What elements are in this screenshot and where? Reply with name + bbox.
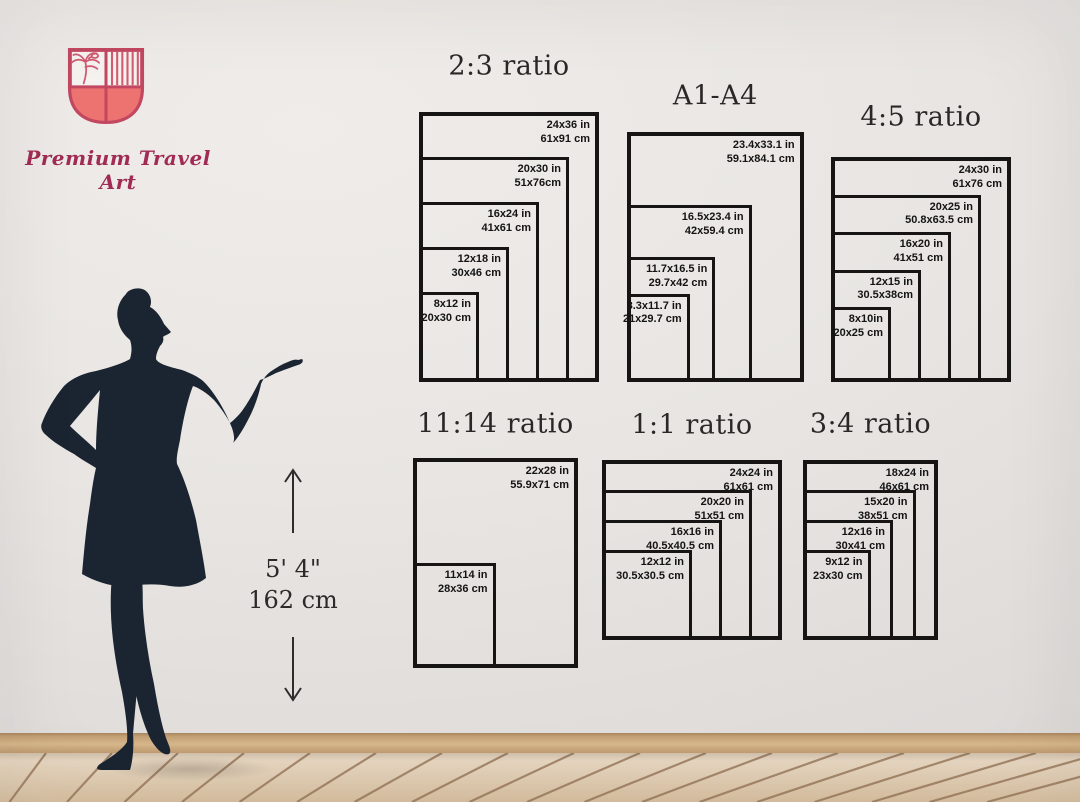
size-label: 16x16 in40.5x40.5 cm: [646, 526, 714, 553]
size-label: 15x20 in38x51 cm: [858, 496, 908, 523]
brand-name: Premium Travel Art: [18, 146, 218, 194]
height-cm-label: 162 cm: [233, 586, 353, 614]
size-label: 11x14 in28x36 cm: [438, 569, 488, 596]
brand-shield-logo: [63, 44, 149, 128]
size-box-11x14in: 11x14 in28x36 cm: [413, 563, 496, 668]
group-title: 11:14 ratio: [417, 409, 574, 440]
size-label: 23.4x33.1 in59.1x84.1 cm: [727, 139, 795, 166]
size-box-12x12in: 12x12 in30.5x30.5 cm: [602, 550, 692, 640]
size-label: 22x28 in55.9x71 cm: [510, 465, 569, 492]
height-marker: [233, 460, 353, 710]
height-feet-label: 5' 4": [233, 555, 353, 583]
size-label: 12x15 in30.5x38cm: [857, 276, 913, 303]
group-title: 1:1 ratio: [631, 410, 752, 441]
size-label: 16.5x23.4 in42x59.4 cm: [682, 211, 744, 238]
size-label: 11.7x16.5 in29.7x42 cm: [646, 263, 707, 290]
size-label: 24x30 in61x76 cm: [952, 164, 1002, 191]
size-label: 8.3x11.7 in21x29.7 cm: [623, 300, 682, 327]
group-title: 2:3 ratio: [448, 51, 569, 82]
arrow-up-icon: [285, 470, 301, 533]
size-chart-poster: Premium Travel Art 5' 4" 162 cm 2:3 rati…: [0, 0, 1080, 802]
group-title: 3:4 ratio: [810, 409, 931, 440]
size-label: 16x20 in41x51 cm: [893, 238, 943, 265]
size-label: 20x30 in51x76cm: [515, 163, 562, 190]
group-title: 4:5 ratio: [860, 102, 981, 133]
size-label: 9x12 in23x30 cm: [813, 556, 863, 583]
size-label: 12x16 in30x41 cm: [835, 526, 885, 553]
size-label: 8x12 in20x30 cm: [421, 298, 471, 325]
arrow-down-icon: [285, 637, 301, 700]
size-box-9x12in: 9x12 in23x30 cm: [803, 550, 871, 640]
size-box-8x12in: 8x12 in20x30 cm: [419, 292, 479, 382]
size-label: 20x25 in50.8x63.5 cm: [905, 201, 973, 228]
size-label: 24x36 in61x91 cm: [540, 119, 590, 146]
size-label: 16x24 in41x61 cm: [481, 208, 531, 235]
size-label: 20x20 in51x51 cm: [694, 496, 744, 523]
size-label: 12x12 in30.5x30.5 cm: [616, 556, 684, 583]
size-box-8.3x11.7in: 8.3x11.7 in21x29.7 cm: [627, 294, 690, 382]
size-label: 8x10in20x25 cm: [833, 313, 883, 340]
group-title: A1-A4: [673, 81, 758, 112]
size-label: 12x18 in30x46 cm: [451, 253, 501, 280]
size-box-8x10in: 8x10in20x25 cm: [831, 307, 891, 382]
